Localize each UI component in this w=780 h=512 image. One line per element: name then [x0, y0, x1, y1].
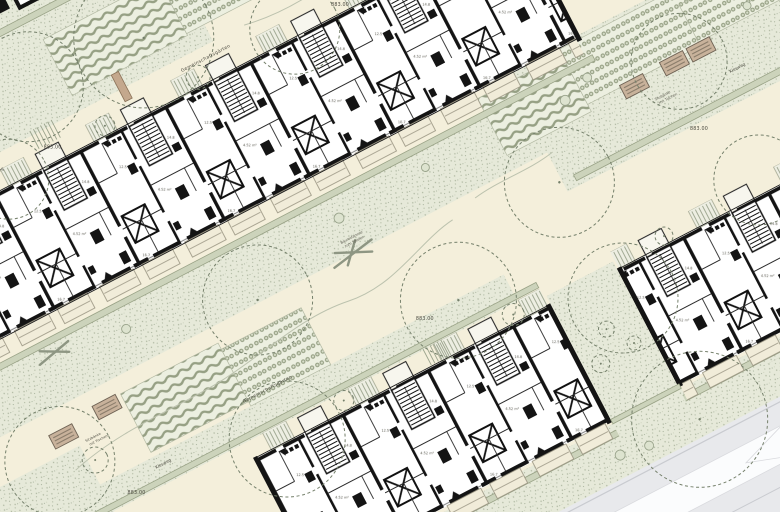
architectural-site-plan: 16.7 12.5 4.52 m² 14.8: [0, 0, 780, 512]
site-plan-drawing: 16.7 12.5 4.52 m² 14.8: [0, 0, 780, 512]
elevation-label: 883.00: [44, 145, 62, 151]
elevation-label: 883.00: [127, 490, 145, 496]
elevation-label: 883.00: [690, 126, 708, 132]
elevation-label: 883.00: [331, 2, 349, 8]
elevation-label: 883.00: [416, 316, 434, 322]
